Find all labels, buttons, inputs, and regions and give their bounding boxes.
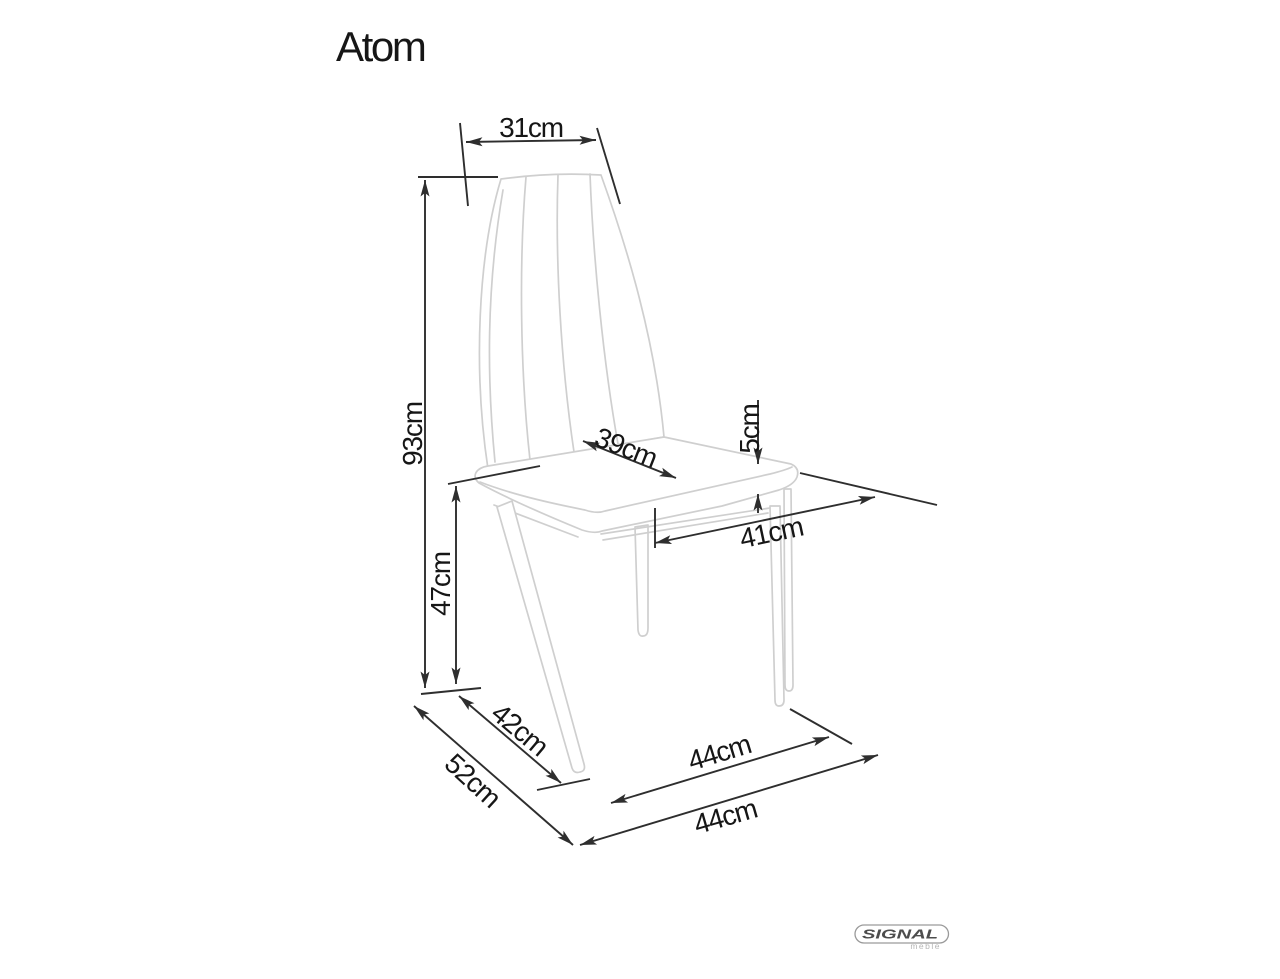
svg-text:44cm: 44cm [690,793,760,840]
svg-text:meble: meble [910,941,941,951]
svg-text:42cm: 42cm [485,697,554,762]
svg-text:47cm: 47cm [425,552,456,616]
svg-text:SIGNAL: SIGNAL [862,927,938,942]
svg-text:5cm: 5cm [734,404,765,453]
svg-text:93cm: 93cm [397,402,428,466]
svg-text:31cm: 31cm [499,112,563,143]
svg-text:Atom: Atom [336,23,425,70]
